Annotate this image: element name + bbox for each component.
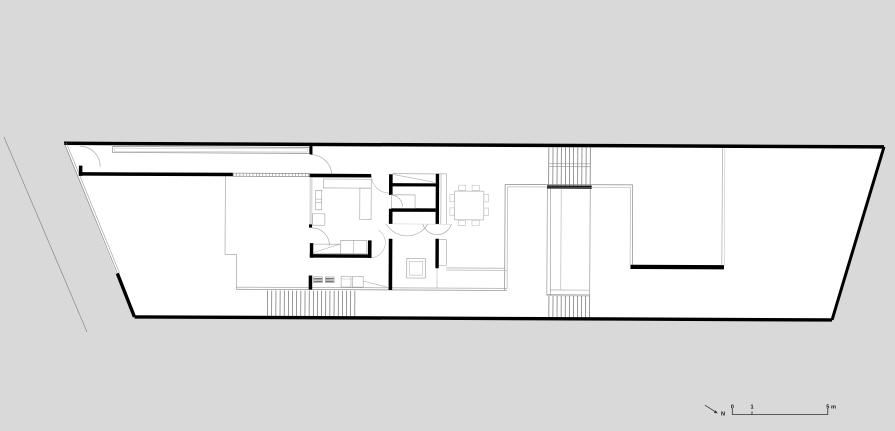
svg-text:5: 5 xyxy=(826,404,829,410)
svg-text:N: N xyxy=(721,412,725,418)
svg-text:m: m xyxy=(831,404,836,410)
svg-text:1: 1 xyxy=(750,404,753,410)
svg-text:0: 0 xyxy=(731,404,734,410)
